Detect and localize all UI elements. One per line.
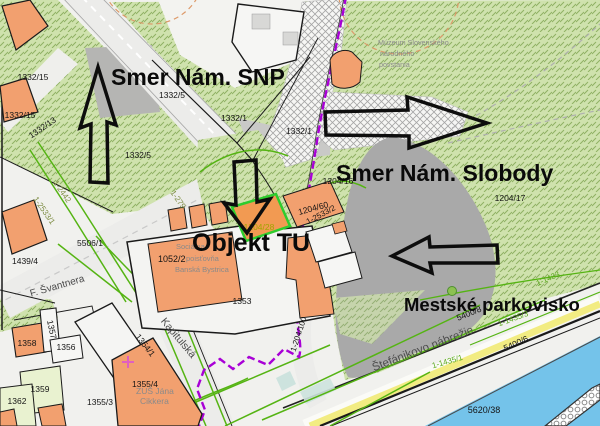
annotation-smer-slobody: Smer Nám. Slobody <box>336 160 553 186</box>
crosswalk-1 <box>276 371 296 391</box>
parcel-label: 1332/5 <box>159 90 185 100</box>
parcel-label: 1355/3 <box>87 397 113 407</box>
parcel-label: 1332/15 <box>18 72 49 82</box>
parcel-label: 5506/1 <box>77 238 103 248</box>
parcel-label: 1439/4 <box>12 256 38 266</box>
parcel-label: 1332/1 <box>286 126 312 136</box>
parcel-label: 1332/1 <box>221 113 247 123</box>
annotation-parkovisko: Mestské parkovisko <box>404 294 580 315</box>
socialna-name-line3: Banská Bystrica <box>175 265 230 274</box>
parcel-label: 1353 <box>233 296 252 306</box>
parcel-label: 1332/15 <box>5 110 36 120</box>
building-plaza-inner-2 <box>283 32 298 45</box>
parcel-label: 1358 <box>18 338 37 348</box>
cadastral-map: 1332/15 1332/15 1332/13 1332/5 1332/5 13… <box>0 0 600 426</box>
museum-name-line3: povstania <box>379 60 410 69</box>
zus-name-line2: Cikkera <box>140 396 169 406</box>
annotation-objekt-tu: Objekt TU <box>192 229 310 257</box>
building-small-1 <box>168 207 187 231</box>
parcel-label: 1362 <box>8 396 27 406</box>
building-plaza-inner-1 <box>252 14 270 29</box>
parcel-label: 1332/5 <box>125 150 151 160</box>
building-small-2 <box>189 204 207 228</box>
zus-name-line1: ZUŠ Jána <box>136 386 174 396</box>
annotation-smer-snp: Smer Nám. SNP <box>111 64 285 90</box>
building-bottom-2 <box>0 409 17 426</box>
parcel-label: 5620/38 <box>468 405 501 415</box>
parcel-label: 1052/2 <box>158 254 186 264</box>
museum-name-line1: Múzeum Slovenského <box>378 38 449 47</box>
parcel-label: 1204/17 <box>495 193 526 203</box>
museum-name-line2: národného <box>380 49 414 58</box>
building-bottom-1 <box>38 404 66 426</box>
parcel-label: 1356 <box>57 342 76 352</box>
parcel-label: 1359 <box>31 384 50 394</box>
map-canvas: 1332/15 1332/15 1332/13 1332/5 1332/5 13… <box>0 0 600 426</box>
green-line-6 <box>330 372 430 426</box>
